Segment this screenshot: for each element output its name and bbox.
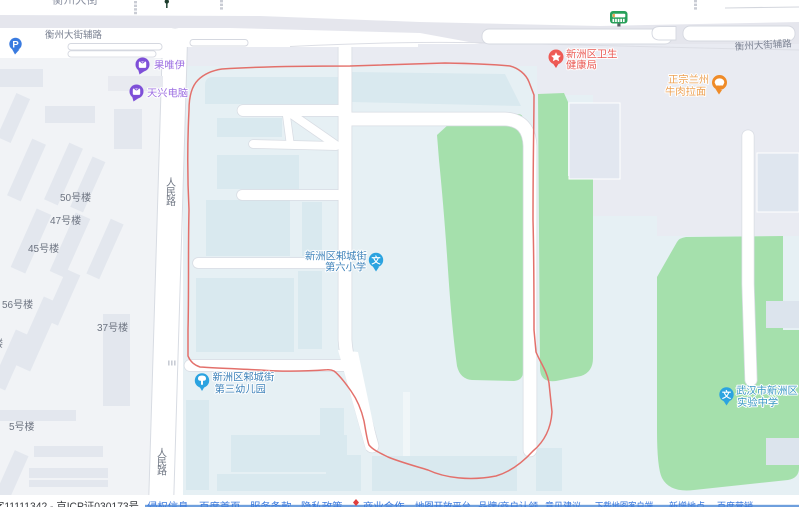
svg-text:47号楼: 47号楼	[50, 214, 81, 227]
svg-text:下载地图客户端: 下载地图客户端	[595, 500, 653, 507]
svg-text:品牌/商户认领: 品牌/商户认领	[478, 500, 539, 507]
svg-text:实验中学: 实验中学	[737, 396, 778, 409]
svg-text:隐私政策: 隐私政策	[301, 500, 343, 507]
svg-text:45号楼: 45号楼	[28, 242, 59, 255]
svg-text:楼: 楼	[0, 337, 3, 350]
svg-text:新增地点: 新增地点	[669, 500, 705, 507]
svg-text:37号楼: 37号楼	[97, 321, 128, 334]
svg-text:56号楼: 56号楼	[2, 298, 33, 311]
svg-text:健康局: 健康局	[566, 59, 597, 72]
svg-text:路: 路	[157, 465, 167, 478]
svg-text:牛肉拉面: 牛肉拉面	[665, 85, 706, 98]
svg-text:正宗兰州: 正宗兰州	[668, 73, 709, 86]
svg-text:武汉市新洲区: 武汉市新洲区	[736, 384, 798, 397]
svg-text:文: 文	[370, 254, 381, 265]
svg-text:侵权信息: 侵权信息	[147, 500, 189, 507]
svg-text:地图开放平台: 地图开放平台	[415, 500, 471, 507]
svg-text:服务条款: 服务条款	[250, 500, 292, 507]
svg-text:新洲区邾城街: 新洲区邾城街	[305, 250, 367, 263]
svg-text:新洲区卫生: 新洲区卫生	[566, 48, 617, 61]
svg-text:意见建议: 意见建议	[545, 500, 582, 507]
svg-text:衡州大街辅路: 衡州大街辅路	[45, 29, 103, 41]
svg-text:百度首页: 百度首页	[199, 500, 241, 507]
svg-text:路: 路	[166, 195, 176, 208]
svg-text:50号楼: 50号楼	[60, 191, 91, 204]
svg-text:P: P	[12, 40, 19, 51]
svg-text:商业合作: 商业合作	[363, 500, 405, 507]
svg-text:文: 文	[721, 389, 732, 400]
svg-text:第三幼儿园: 第三幼儿园	[215, 383, 266, 396]
svg-text:新洲区邾城街: 新洲区邾城街	[213, 371, 275, 384]
svg-text:5号楼: 5号楼	[9, 420, 35, 433]
svg-text:字11111342 - 京ICP证030173号: 字11111342 - 京ICP证030173号	[0, 499, 139, 507]
svg-text:衡州大街: 衡州大街	[52, 0, 98, 7]
svg-text:百度营销: 百度营销	[717, 500, 753, 507]
svg-text:天兴电脑: 天兴电脑	[147, 87, 188, 100]
svg-text:第六小学: 第六小学	[325, 261, 366, 274]
svg-text:果唯伊: 果唯伊	[154, 60, 185, 72]
